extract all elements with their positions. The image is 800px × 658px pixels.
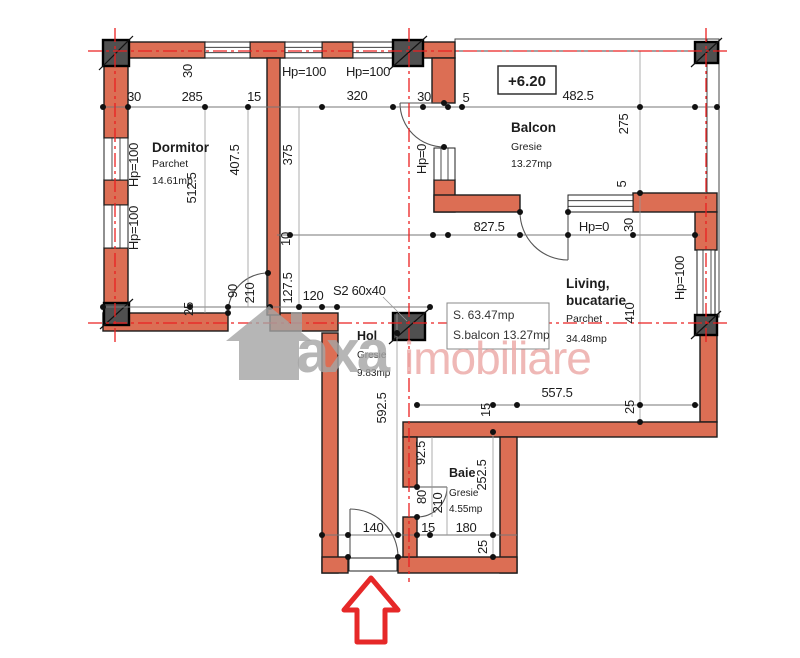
- dim-label: 320: [347, 88, 368, 103]
- level-marker: +6.20: [498, 66, 556, 94]
- parapet-label: Hp=100: [672, 256, 687, 300]
- room-name: Baie: [449, 466, 475, 480]
- dim-label: 557.5: [541, 385, 572, 400]
- parapet-label: Hp=0: [579, 219, 609, 234]
- dim-label: 407.5: [227, 144, 242, 175]
- dim-label: 275: [616, 114, 631, 135]
- dim-label: 120: [303, 288, 324, 303]
- room-area: 13.27mp: [511, 158, 552, 170]
- window: [568, 195, 633, 212]
- dim-label: 30: [621, 218, 636, 232]
- watermark-brand-left: axa: [296, 318, 391, 385]
- level-value: +6.20: [508, 73, 546, 90]
- column: [100, 299, 133, 329]
- door-balcon-living: [520, 212, 568, 260]
- parapet-label: Hp=100: [126, 206, 141, 250]
- room-dormitor: Dormitor Parchet 14.61mp: [152, 140, 210, 187]
- dim-label: 592.5: [374, 392, 389, 423]
- window: [434, 148, 455, 180]
- room-finish: Gresie: [449, 488, 479, 499]
- room-area: 14.61mp: [152, 175, 193, 187]
- window: [285, 42, 322, 58]
- dim-label: 5: [614, 180, 629, 187]
- dim-label: 25: [181, 302, 196, 316]
- window: [104, 205, 128, 248]
- room-area: 4.55mp: [449, 504, 483, 515]
- room-finish: Parchet: [152, 158, 188, 170]
- column: [99, 36, 133, 70]
- dim-label: 30: [180, 64, 195, 78]
- room-name: Dormitor: [152, 140, 210, 155]
- summary-total: S. 63.47mp: [453, 308, 515, 322]
- dim-label: 15: [421, 520, 435, 535]
- dim-label: 80: [414, 490, 429, 504]
- watermark-brand-right: imobiliare: [404, 332, 591, 384]
- room-finish: Gresie: [511, 141, 542, 153]
- dim-label: 25: [475, 540, 490, 554]
- parapet-label: Hp=0: [414, 144, 429, 174]
- dim-label: 140: [363, 520, 384, 535]
- dim-label: 252.5: [474, 459, 489, 490]
- dim-label: 90: [225, 284, 240, 298]
- entrance-threshold: [349, 558, 397, 571]
- floor-plan-drawing: 30 285 15 320 30 5 482.5 Hp=100 Hp=100 3…: [0, 0, 800, 658]
- dim-label: 10: [278, 232, 293, 246]
- dim-label: 482.5: [562, 88, 593, 103]
- dim-label: 30: [417, 89, 431, 104]
- dim-label: 5: [463, 90, 470, 105]
- room-balcon: Balcon Gresie 13.27mp: [511, 120, 556, 170]
- dim-label: 285: [182, 89, 203, 104]
- dim-label: 180: [456, 520, 477, 535]
- parapet-label: Hp=100: [126, 143, 141, 187]
- column-type-label: S2 60x40: [333, 283, 386, 298]
- dim-label: 827.5: [473, 219, 504, 234]
- dim-label: 30: [127, 89, 141, 104]
- parapet-label: Hp=100: [282, 64, 326, 79]
- window: [353, 42, 393, 58]
- dim-label: 15: [247, 89, 261, 104]
- dim-label: 127.5: [280, 272, 295, 303]
- window: [104, 138, 128, 180]
- dim-label: 92.5: [413, 441, 428, 465]
- room-name: Living,: [566, 276, 610, 291]
- floor-plan-page: 30 285 15 320 30 5 482.5 Hp=100 Hp=100 3…: [0, 0, 800, 658]
- room-finish: Parchet: [566, 313, 602, 325]
- dim-label: 15: [478, 403, 493, 417]
- entrance-arrow: [344, 578, 398, 642]
- dim-label: 210: [430, 493, 445, 514]
- column: [389, 36, 427, 70]
- window: [205, 42, 250, 58]
- dim-label: 375: [280, 145, 295, 166]
- dim-label: 210: [242, 283, 257, 304]
- dim-label: 25: [622, 400, 637, 414]
- parapet-label: Hp=100: [346, 64, 390, 79]
- room-name: Balcon: [511, 120, 556, 135]
- room-name: bucatarie: [566, 293, 627, 308]
